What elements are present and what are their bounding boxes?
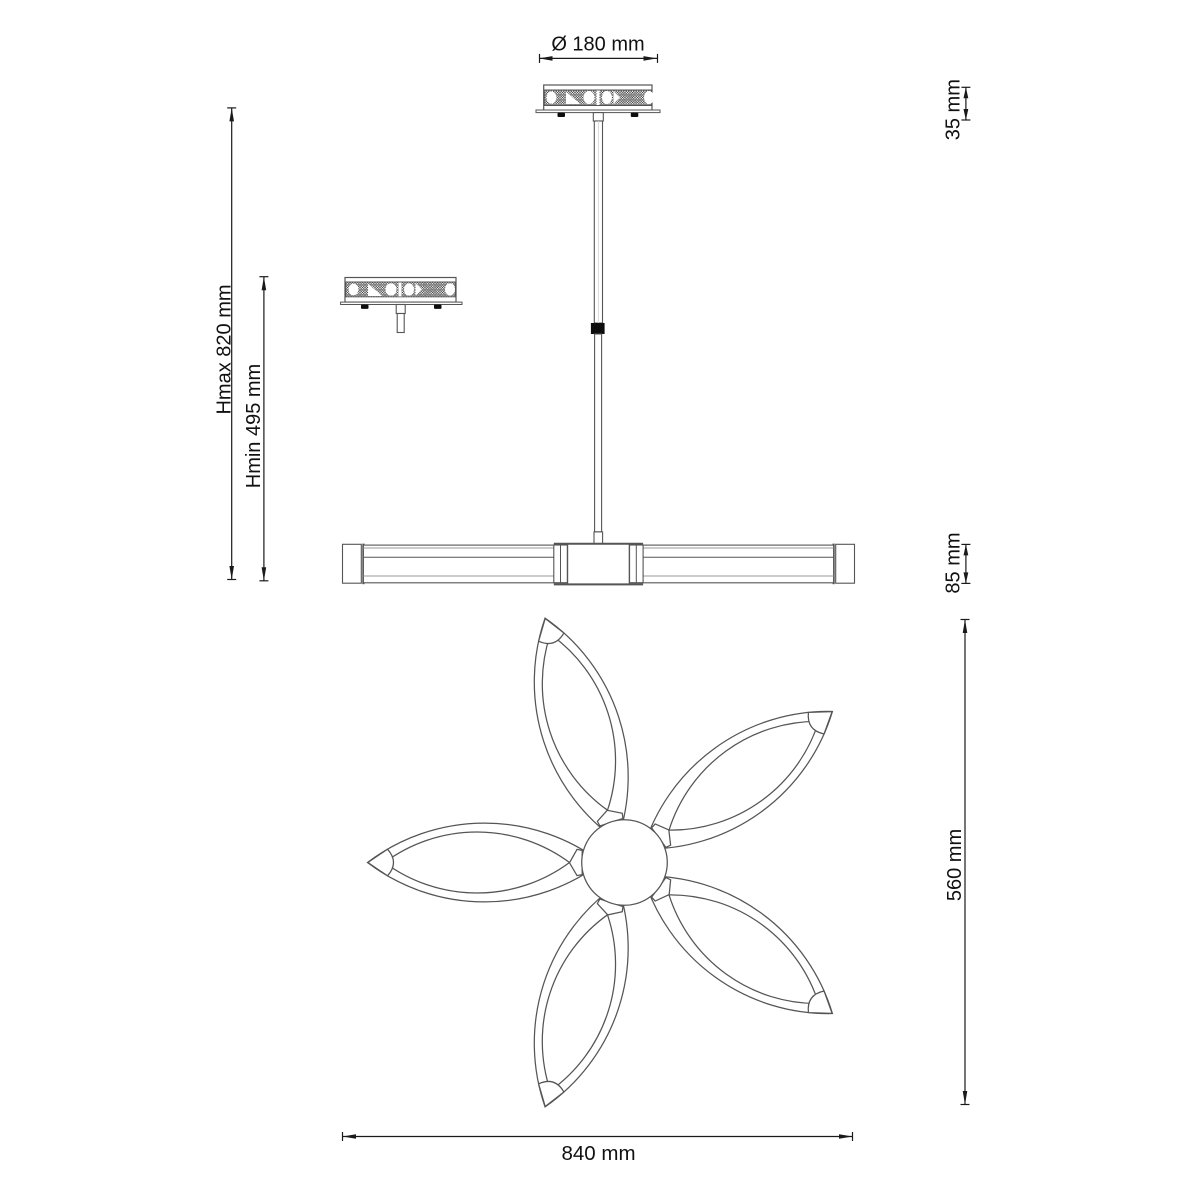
svg-text:Hmin 495 mm: Hmin 495 mm bbox=[243, 364, 265, 488]
svg-text:840 mm: 840 mm bbox=[561, 1142, 635, 1165]
svg-text:Ø 180 mm: Ø 180 mm bbox=[551, 34, 644, 56]
svg-text:85 mm: 85 mm bbox=[943, 532, 965, 593]
svg-text:560 mm: 560 mm bbox=[944, 829, 966, 901]
svg-text:35 mm: 35 mm bbox=[943, 79, 965, 140]
